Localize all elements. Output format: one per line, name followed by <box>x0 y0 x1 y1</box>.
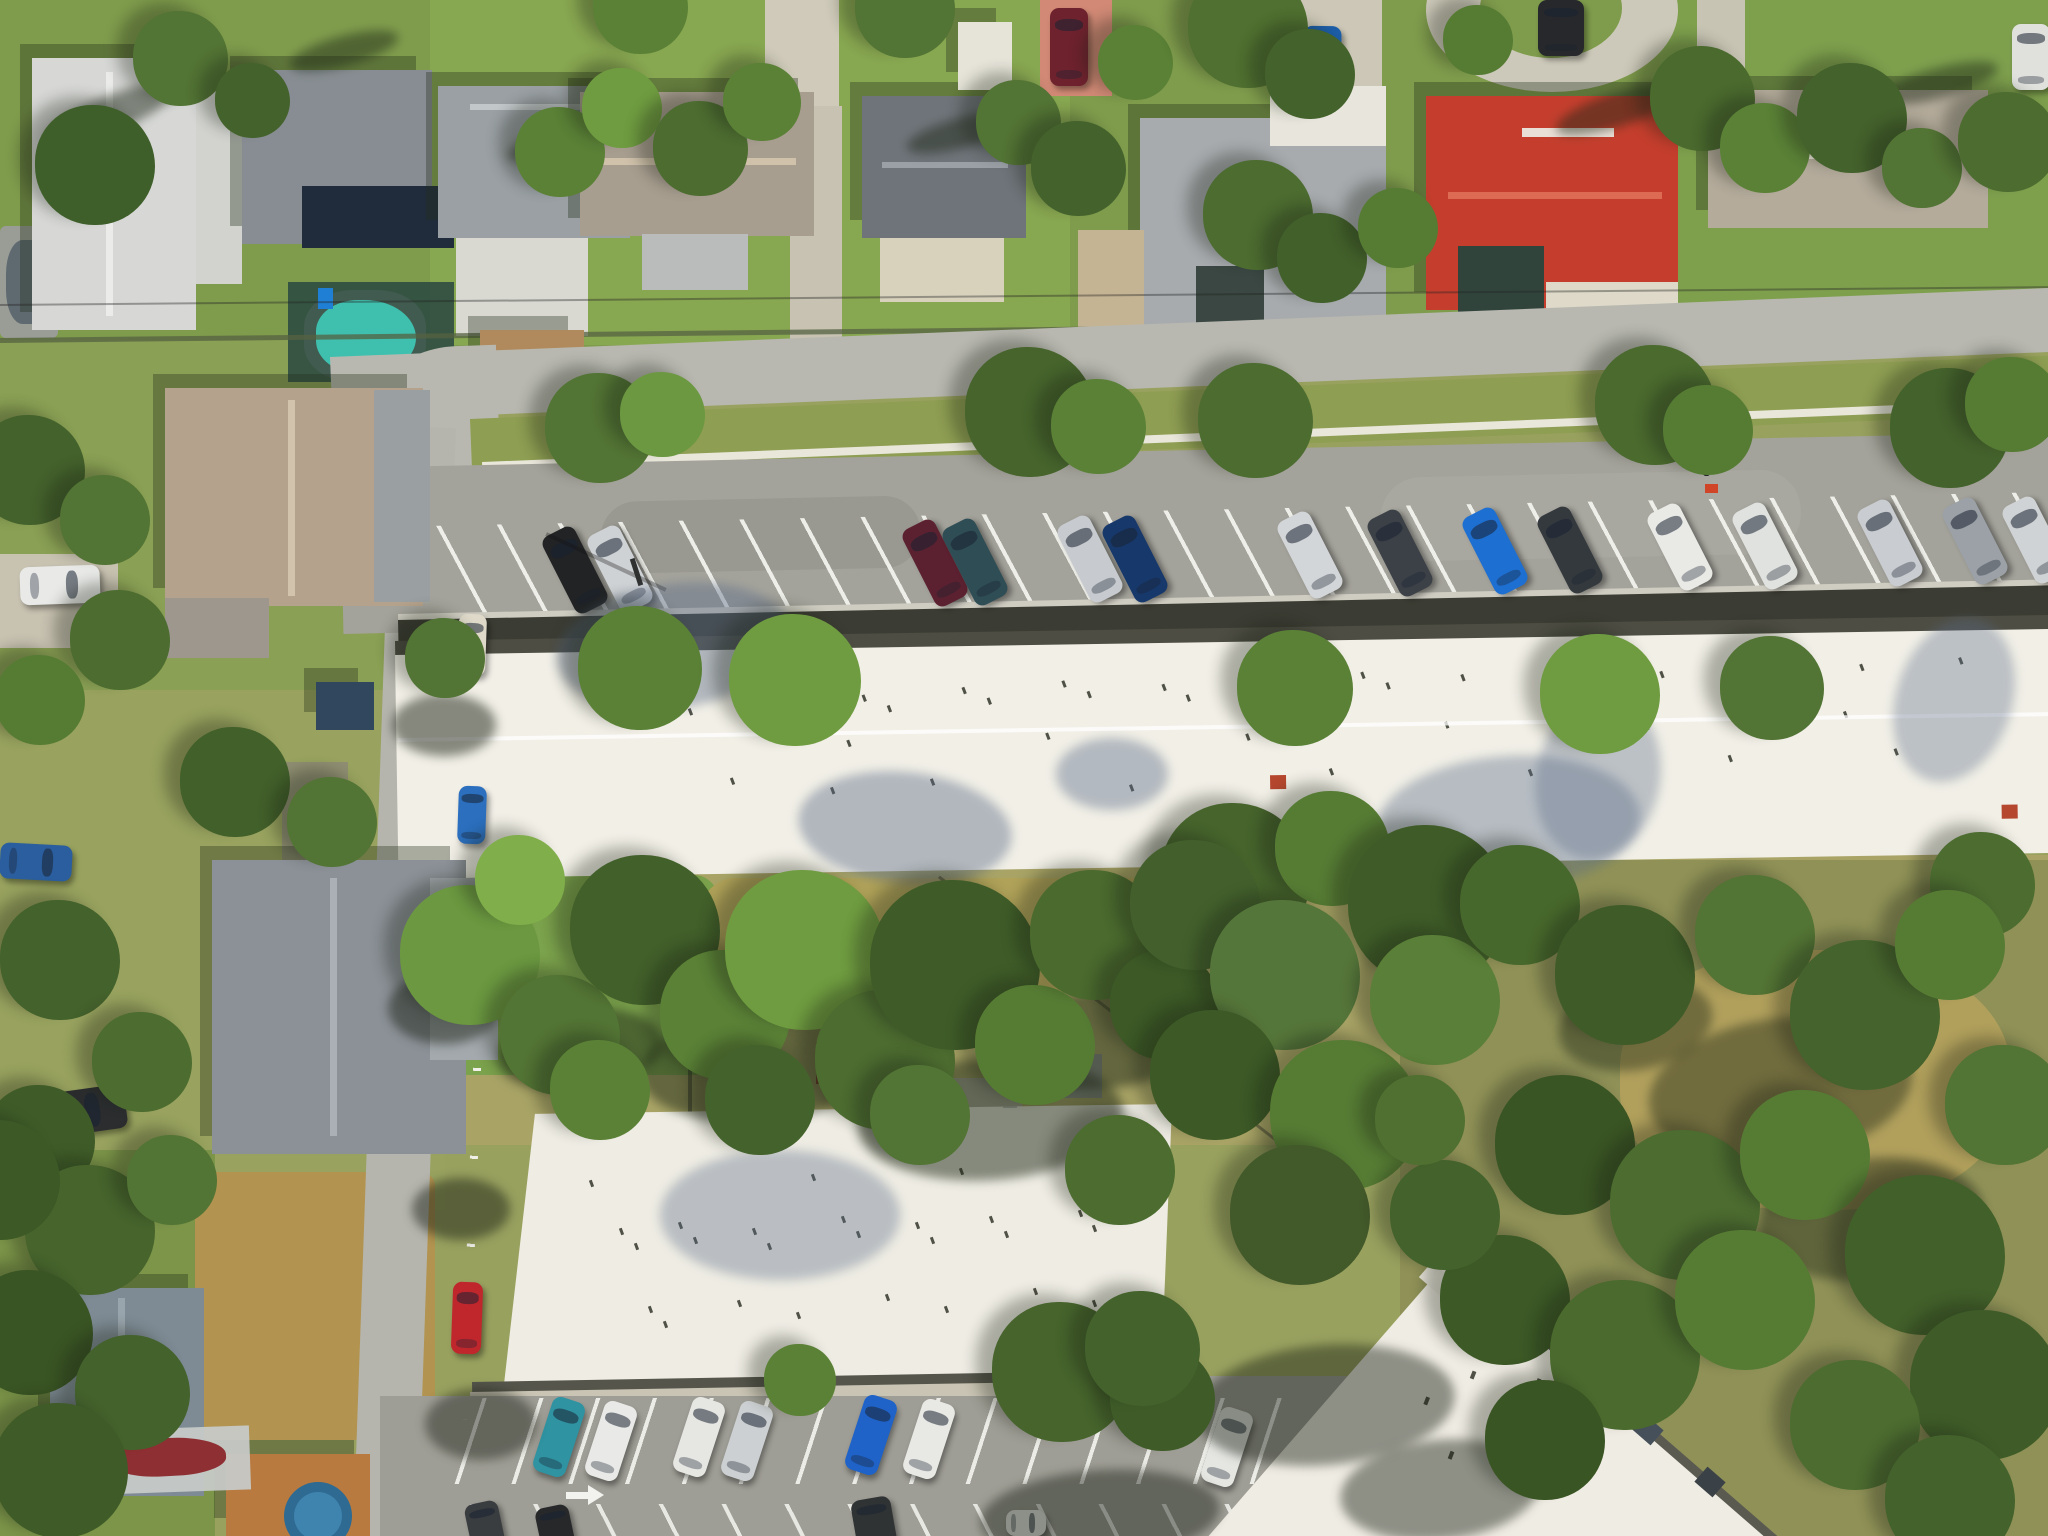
tree-verge-9 <box>1965 357 2048 452</box>
street-car-blue-rear-window <box>461 831 481 839</box>
tree-verge-7 <box>1663 385 1753 475</box>
tree-f-11 <box>1895 890 2005 1000</box>
bldg1-roof-vent-6 <box>962 686 967 694</box>
car-white-edge-windshield <box>2017 33 2046 44</box>
house-f-patio <box>1078 230 1144 332</box>
trampoline-inner <box>294 1492 342 1536</box>
bush-lot-1 <box>764 1344 836 1416</box>
tree-top-2 <box>133 11 228 106</box>
street-car-red-windshield <box>456 1292 479 1304</box>
palm-carport-1 <box>578 606 702 730</box>
pavement-arrow-head <box>588 1485 604 1505</box>
tree-f-3 <box>1150 1010 1280 1140</box>
car-gray-1-windshield <box>1374 519 1405 544</box>
suv-dark-culdesac <box>1538 0 1584 56</box>
palm-carport-2 <box>729 614 861 746</box>
palm-carport-5 <box>1720 636 1824 740</box>
bldg1-roof-vent-1 <box>688 709 693 717</box>
bldg1-roof-vent-29 <box>1727 755 1732 763</box>
bldg1-roof-vent-33 <box>1245 733 1250 741</box>
tree-f-23 <box>1485 1380 1605 1500</box>
street-car-red-rear-window <box>455 1339 476 1348</box>
house-b-solar-pan <box>302 186 454 248</box>
tree-top-19 <box>1443 5 1513 75</box>
car-blue-bright-rear-window <box>1495 568 1522 589</box>
car-darkblue-windshield <box>1109 525 1140 550</box>
car-white-1-rear-window <box>1680 564 1707 585</box>
bldg1-roof-vent-5 <box>887 705 892 713</box>
palm-carport-3 <box>1237 630 1353 746</box>
tree-mid-15 <box>1065 1115 1175 1225</box>
bldg1-roof-vent-7 <box>987 697 992 705</box>
tree-f-6 <box>1370 935 1500 1065</box>
bldg1-roof-vent-1 <box>2001 804 2017 818</box>
house-c-lanai <box>456 238 588 336</box>
bldg1-roof-vent-27 <box>1329 768 1334 776</box>
tree-f-22 <box>1390 1160 1500 1270</box>
tree-f-25 <box>1375 1075 1465 1165</box>
lc-gray-ridge <box>330 878 337 1136</box>
bldg2-roof-vent-15 <box>663 1321 668 1329</box>
bldg2-roof-vent-18 <box>885 1294 890 1302</box>
bldg1-roof-vent-13 <box>1360 671 1365 679</box>
car-gray-3-rear-window <box>1975 558 2002 579</box>
lc-car-blue-rear-window <box>8 848 18 874</box>
tree-f-14 <box>1740 1090 1870 1220</box>
lc-taupe-ridge <box>288 400 295 596</box>
car-white-b3-windshield <box>922 1408 950 1428</box>
bldg2-roof-vent-20 <box>1033 1288 1038 1296</box>
bldg1-roof-vent-9 <box>1086 691 1091 699</box>
lc-taupe-wing <box>165 598 269 658</box>
house-g-ridge <box>1448 192 1662 199</box>
tree-mid-14 <box>870 1065 970 1165</box>
bldg1-roof-vent-0 <box>1270 775 1286 789</box>
tree-mid-13 <box>705 1045 815 1155</box>
tree-lc-4 <box>287 777 377 867</box>
tree-top-5 <box>582 68 662 148</box>
car-white-b2-windshield <box>692 1406 720 1426</box>
car-white-1-windshield <box>1654 513 1685 538</box>
tree-verge-2 <box>620 372 705 457</box>
house-g-cage <box>1458 246 1544 312</box>
car-white-edge <box>2012 24 2048 90</box>
car-teal-b-windshield <box>552 1406 580 1426</box>
tree-top-13 <box>1358 188 1438 268</box>
bldg2-roof-vent-19 <box>944 1306 949 1314</box>
car-dark-b3-windshield <box>856 1503 887 1516</box>
roofshadow-7 <box>660 1150 900 1280</box>
bldg1-roof-vent-23 <box>730 777 735 785</box>
car-gray-1-rear-window <box>1400 570 1427 591</box>
tree-top-1 <box>35 105 155 225</box>
tree-f-18 <box>1675 1230 1815 1370</box>
car-darkteal-rear-window <box>975 579 1002 600</box>
house-e-ridge <box>882 162 1008 168</box>
car-dark-b1-windshield <box>469 1507 496 1520</box>
car-maroon-driveway-windshield <box>1055 19 1084 31</box>
car-silver-3-windshield <box>1284 521 1315 546</box>
bldg2-roof-vent-0 <box>619 1228 624 1236</box>
bldg2-roof-vent-10 <box>989 1216 994 1224</box>
tree-lc-6 <box>92 1012 192 1112</box>
street-car-blue <box>457 786 487 845</box>
car-maroon-lot-rear-window <box>935 580 962 601</box>
tree-top-3 <box>215 63 290 138</box>
lc-car-blue-windshield <box>41 849 53 877</box>
lc-car-white-windshield <box>66 570 79 599</box>
bldg1-roof-vent-21 <box>1859 663 1864 671</box>
car-darkteal-windshield <box>949 528 980 553</box>
tree-lc-5 <box>0 900 120 1020</box>
car-gray-2-rear-window <box>1570 567 1597 588</box>
car-black-suv-rear-window <box>575 587 602 608</box>
tree-f-8 <box>1555 905 1695 1045</box>
bldg1-roof-vent-8 <box>1061 680 1066 688</box>
palm-carport-4 <box>1540 634 1660 754</box>
roofshadow-3 <box>1056 738 1168 810</box>
bldg1-roof-vent-18 <box>1659 671 1664 679</box>
shed-blueroof <box>316 682 374 730</box>
tree-mid-11 <box>475 835 565 925</box>
street-shadow-3 <box>412 1178 510 1240</box>
car-dark-b2-windshield <box>539 1510 566 1522</box>
tree-lc-3 <box>180 727 290 837</box>
car-white-2-rear-window <box>1765 563 1792 584</box>
pavement-arrow-shaft <box>566 1492 588 1499</box>
bldg2-roof-vent-14 <box>648 1306 653 1314</box>
cart-red <box>1705 484 1718 493</box>
car-white-b3-rear-window <box>908 1457 934 1473</box>
tree-top-9 <box>1031 121 1126 216</box>
street-shadow-4 <box>425 1388 537 1460</box>
car-silver-2-windshield <box>1064 525 1095 550</box>
tree-lc-12 <box>127 1135 217 1225</box>
tree-lc-14 <box>60 475 150 565</box>
car-white-b1-rear-window <box>590 1459 616 1475</box>
bldg1-roof-vent-10 <box>1161 683 1166 691</box>
car-darkblue-rear-window <box>1135 576 1162 597</box>
car-gray-2-windshield <box>1544 516 1575 541</box>
bldg2-roof-vent-13 <box>1092 1225 1097 1233</box>
lc-car-white-rear-window <box>29 572 40 599</box>
bldg2-roof-vent-17 <box>796 1312 801 1320</box>
street-car-blue-windshield <box>462 794 484 804</box>
car-silver-b-rear-window <box>726 1459 752 1475</box>
bldg2-roof-vent-9 <box>929 1237 934 1245</box>
car-maroon-driveway <box>1050 8 1088 86</box>
tree-verge-5 <box>1198 363 1313 478</box>
tree-top-12 <box>1277 213 1367 303</box>
bush-lot-4 <box>1085 1291 1200 1406</box>
bldg2-roof-vent-1 <box>633 1243 638 1251</box>
tree-lc-2 <box>0 655 85 745</box>
car-silver-2-rear-window <box>1090 576 1117 597</box>
house-e-wall <box>880 238 1004 302</box>
car-blue-b-rear-window <box>850 1453 876 1469</box>
bldg1-roof-vent-14 <box>1385 682 1390 690</box>
suv-dark-culdesac-windshield <box>1544 8 1579 17</box>
car-blue-bright-windshield <box>1469 517 1500 542</box>
car-silver-3-rear-window <box>1310 572 1337 593</box>
bldg2-roof-vent-22 <box>589 1180 594 1188</box>
palm-carport-6 <box>405 618 485 698</box>
car-blue-b-windshield <box>864 1404 892 1424</box>
tree-lc-1 <box>70 590 170 690</box>
tree-top-10 <box>1098 25 1173 100</box>
lc-gray-strip <box>374 390 430 602</box>
car-white-2-windshield <box>1739 512 1770 537</box>
bldg3-roof-vent-1 <box>1470 1371 1477 1380</box>
tree-top-18 <box>1958 92 2048 192</box>
car-silver-4-windshield <box>1864 509 1895 534</box>
tree-top-17 <box>1882 128 1962 208</box>
car-gray-3-windshield <box>1949 507 1980 532</box>
car-maroon-lot-windshield <box>909 529 940 554</box>
house-d-awning <box>642 234 748 290</box>
car-silver-5-rear-window <box>2035 557 2048 578</box>
bldg2-roof-vent-16 <box>737 1300 742 1308</box>
lc-car-blue <box>0 842 73 882</box>
bldg1-roof-vent-15 <box>1460 674 1465 682</box>
car-white-edge-rear-window <box>2018 76 2045 84</box>
car-white-b2-rear-window <box>678 1455 704 1471</box>
bldg2-roof-vent-21 <box>1092 1300 1097 1308</box>
tree-mid-12 <box>550 1040 650 1140</box>
car-silver-b-windshield <box>740 1410 768 1430</box>
car-silver-4-rear-window <box>1890 560 1917 581</box>
car-white-b1-windshield <box>604 1410 632 1430</box>
tree-top-21 <box>1265 29 1355 119</box>
suv-dark-culdesac-rear-window <box>1545 44 1577 51</box>
bldg1-roof-vent-31 <box>846 740 851 748</box>
bldg1-roof-vent-4 <box>862 695 867 703</box>
street-shadow-1 <box>392 694 496 756</box>
bldg2-roof-vent-11 <box>1003 1231 1008 1239</box>
car-teal-b-rear-window <box>538 1455 564 1471</box>
car-silver-5-windshield <box>2009 506 2040 531</box>
tree-f-5 <box>1230 1145 1370 1285</box>
tree-mid-8 <box>975 985 1095 1105</box>
car-maroon-driveway-rear-window <box>1056 70 1083 79</box>
bldg2-roof-vent-8 <box>915 1222 920 1230</box>
tree-top-7 <box>723 63 801 141</box>
bldg1-roof-vent-11 <box>1186 694 1191 702</box>
recycle-bin <box>318 288 333 309</box>
bldg1-roof-vent-32 <box>1045 732 1050 740</box>
car-white-b4-rear-window <box>1206 1465 1232 1481</box>
street-car-red <box>451 1281 483 1354</box>
tree-verge-4 <box>1051 379 1146 474</box>
shed-e <box>958 22 1012 90</box>
stage <box>0 0 2048 1536</box>
